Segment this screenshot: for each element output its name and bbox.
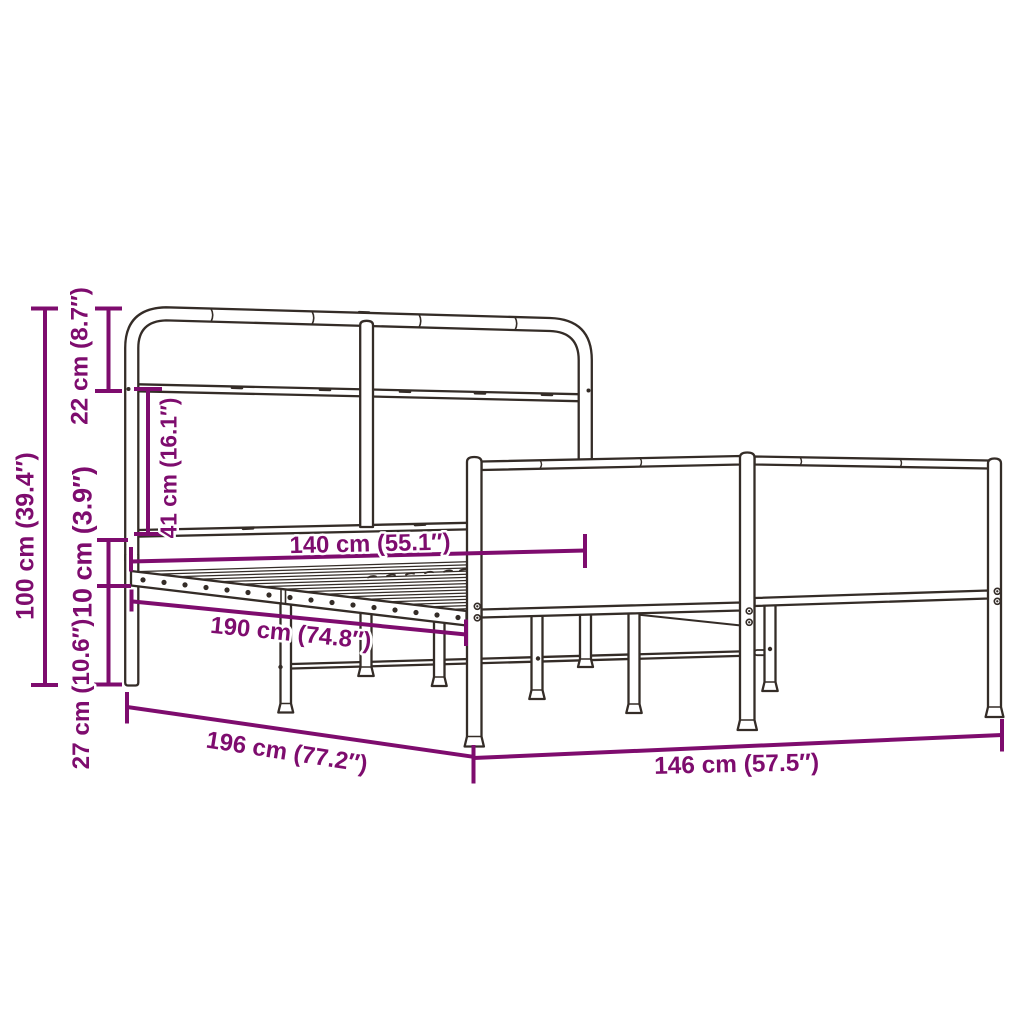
svg-text:146 cm (57.5″): 146 cm (57.5″) [654,749,819,780]
svg-text:10 cm (3.9″): 10 cm (3.9″) [67,466,97,618]
svg-text:27 cm (10.6″): 27 cm (10.6″) [68,619,95,770]
svg-text:140 cm (55.1″): 140 cm (55.1″) [289,529,450,560]
svg-text:22 cm (8.7″): 22 cm (8.7″) [67,287,94,425]
svg-text:100 cm (39.4″): 100 cm (39.4″) [12,452,39,620]
svg-text:41 cm (16.1″): 41 cm (16.1″) [155,398,181,539]
